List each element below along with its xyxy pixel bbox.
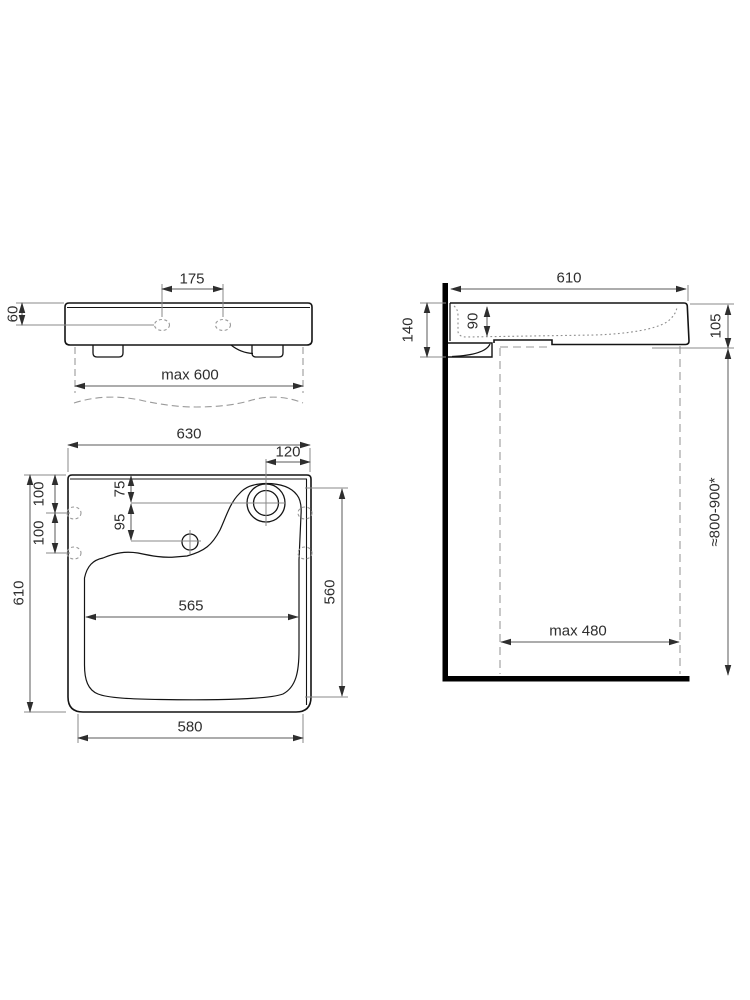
drawing-canvas [0,0,750,1000]
dim-label-side-depth: 610 [556,271,581,286]
dim-label-side-back-height: 140 [401,317,416,342]
technical-drawing-page: 175 60 max 600 610 140 90 105 ≈800-900* … [0,0,750,1000]
front-tap-hole-right [216,320,231,331]
front-basin-outline [65,303,312,345]
plan-outer-outline [68,475,311,712]
dim-label-plan-base-width: 580 [177,720,202,735]
dim-label-plan-bowl-width: 565 [178,599,203,614]
side-basin-profile [450,303,689,345]
dim-label-front-max-width: max 600 [161,368,219,383]
front-wall-break-line [74,397,303,407]
side-trap-curve [452,344,490,357]
front-tab-left [93,345,123,357]
dim-label-plan-bowl-depth: 560 [323,579,338,604]
front-tab-right [252,345,283,357]
floor-line [443,676,690,682]
front-tap-hole-left [155,320,170,331]
dim-label-plan-hole-pitch-2: 100 [32,520,47,545]
dim-label-plan-overflow-offset: 95 [113,514,128,531]
dim-label-front-hole-height: 60 [6,306,21,323]
dim-label-front-hole-spacing: 175 [179,272,204,287]
dim-label-side-front-height: 105 [709,313,724,338]
plan-fixing-hole-right-1 [298,507,312,519]
front-view [16,284,312,407]
dim-label-side-bowl-depth: 90 [466,313,481,330]
front-trap-edge [231,345,253,354]
dim-label-plan-drain-offset: 120 [275,445,300,460]
dim-label-plan-drain-from-back: 75 [113,481,128,498]
plan-fixing-hole-right-2 [298,547,312,559]
dim-label-plan-depth: 610 [12,580,27,605]
plan-view [24,445,348,743]
wall-line [443,283,449,681]
dim-label-plan-width: 630 [176,427,201,442]
dim-label-plan-hole-pitch-1: 100 [32,481,47,506]
dim-label-side-max-clearance: max 480 [549,624,607,639]
dim-label-side-install-height: ≈800-900* [708,477,723,546]
